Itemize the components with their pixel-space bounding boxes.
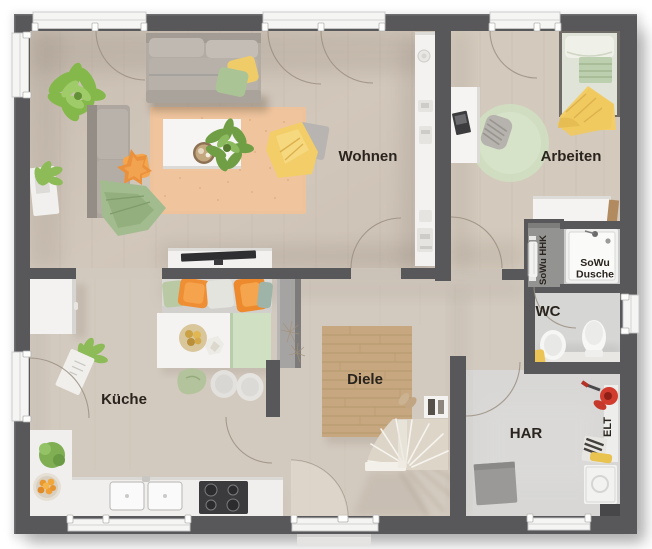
svg-text:WC: WC [536,303,561,320]
svg-text:Arbeiten: Arbeiten [541,148,602,165]
svg-text:ELT: ELT [602,417,614,437]
svg-text:Küche: Küche [101,391,147,408]
svg-text:HAR: HAR [510,425,543,442]
svg-text:SoWu: SoWu [580,257,610,269]
svg-text:Wohnen: Wohnen [339,148,398,165]
svg-text:Diele: Diele [347,371,383,388]
svg-text:Dusche: Dusche [576,269,614,281]
svg-text:SoWu HHK: SoWu HHK [538,235,549,285]
